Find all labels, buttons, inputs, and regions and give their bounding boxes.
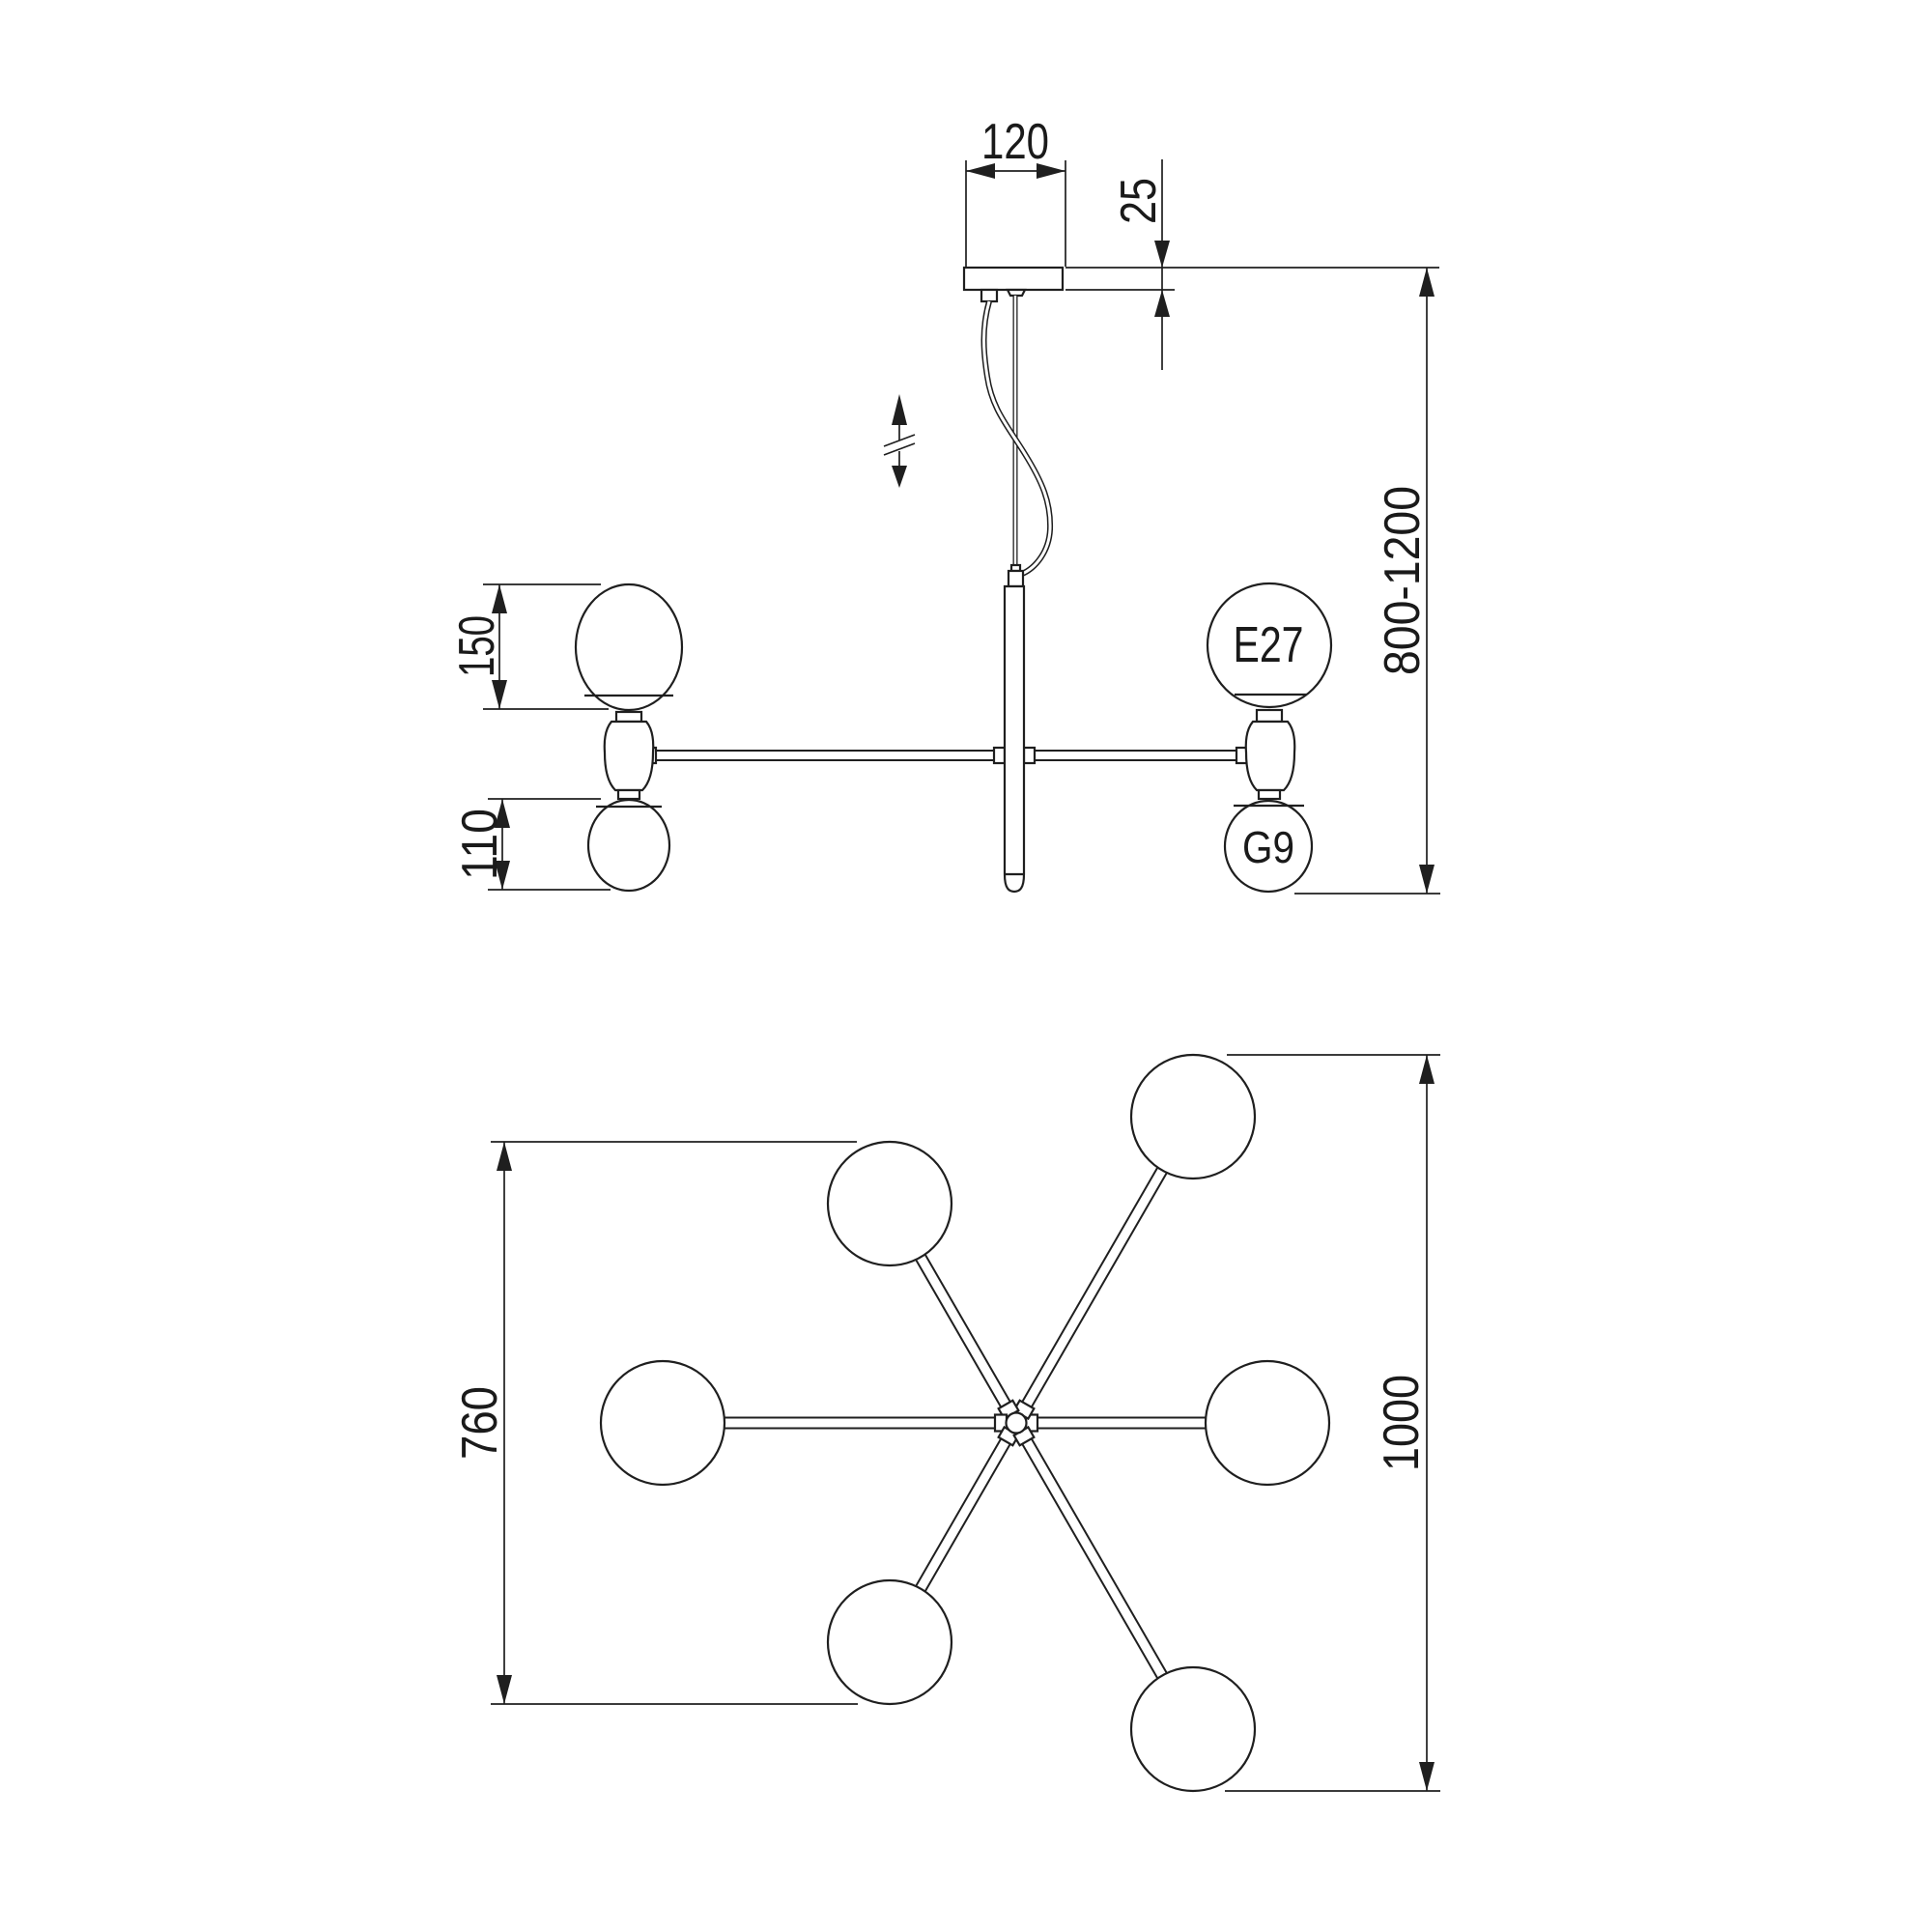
dim-label-large-globe: 150 xyxy=(449,615,505,677)
drawing-canvas: E27 G9 120 25 xyxy=(0,0,1932,1932)
cross-arm xyxy=(647,748,1249,763)
plan-hub xyxy=(1007,1413,1027,1434)
plan-globe xyxy=(1206,1361,1329,1485)
cable-gland xyxy=(981,290,997,301)
dim-label-overall-diameter: 1000 xyxy=(1374,1375,1430,1471)
plan-globe xyxy=(601,1361,724,1485)
side-view: E27 G9 120 25 xyxy=(449,114,1440,894)
dim-label-suspension-height: 800-1200 xyxy=(1375,486,1431,675)
plan-globe xyxy=(828,1142,952,1265)
dim-label-canopy-width: 120 xyxy=(981,114,1049,170)
glass-globe-small xyxy=(588,800,669,891)
socket-neck xyxy=(618,790,639,799)
dim-label-inner-span: 760 xyxy=(452,1386,508,1460)
wire-holder xyxy=(1008,290,1025,296)
left-lamp-assembly xyxy=(576,584,682,891)
right-lamp-assembly: E27 G9 xyxy=(1207,583,1331,892)
lamp-socket xyxy=(605,722,653,790)
plan-globe xyxy=(1131,1667,1255,1791)
center-rod xyxy=(1005,565,1024,892)
dim-suspension-height: 800-1200 xyxy=(1294,268,1440,894)
socket-neck xyxy=(616,712,641,722)
height-adjustable-icon xyxy=(884,394,915,488)
dim-label-canopy-thickness: 25 xyxy=(1111,178,1167,224)
socket-neck xyxy=(1259,790,1280,799)
plan-globe xyxy=(828,1580,952,1704)
technical-drawing-page: E27 G9 120 25 xyxy=(0,0,1932,1932)
dim-label-small-globe: 110 xyxy=(452,809,508,880)
lamp-socket xyxy=(1246,722,1294,790)
socket-neck xyxy=(1257,710,1282,722)
arm-connector xyxy=(994,748,1005,763)
plan-globe xyxy=(1131,1055,1255,1179)
glass-globe-large xyxy=(576,584,682,710)
plan-arms xyxy=(663,1117,1267,1729)
socket-label-g9: G9 xyxy=(1242,822,1294,872)
ceiling-canopy xyxy=(964,268,1063,290)
dim-small-globe: 110 xyxy=(452,799,611,890)
socket-label-e27: E27 xyxy=(1234,617,1304,673)
dim-canopy-thickness: 25 xyxy=(1065,159,1439,370)
arm-connector xyxy=(1024,748,1035,763)
plan-view: 760 1000 xyxy=(452,1055,1440,1791)
dim-canopy-width: 120 xyxy=(966,114,1065,267)
